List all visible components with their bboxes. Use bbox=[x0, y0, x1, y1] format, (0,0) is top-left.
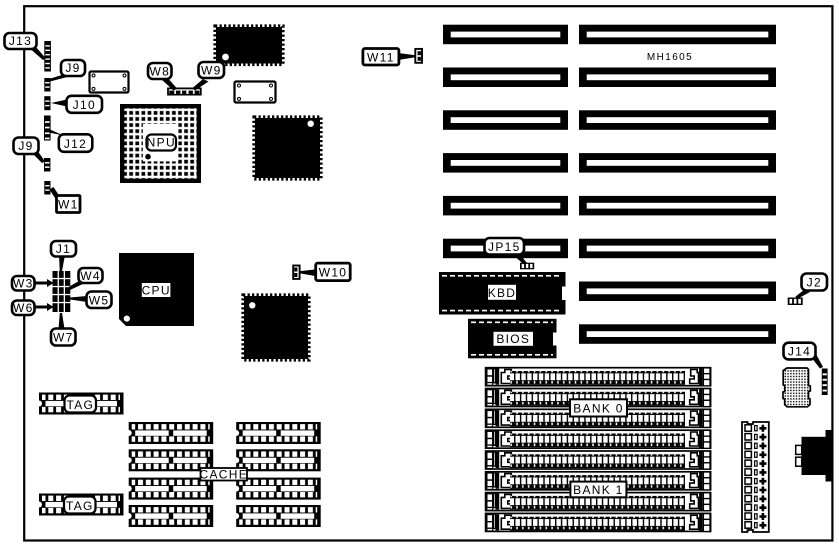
svg-text:W7: W7 bbox=[53, 331, 74, 345]
svg-text:W11: W11 bbox=[367, 50, 395, 64]
svg-text:J2: J2 bbox=[807, 276, 822, 290]
svg-text:J9: J9 bbox=[18, 139, 33, 153]
svg-text:BANK 1: BANK 1 bbox=[573, 483, 624, 497]
svg-text:CACHE: CACHE bbox=[200, 468, 249, 482]
svg-text:J9: J9 bbox=[65, 61, 80, 75]
svg-text:W1: W1 bbox=[58, 198, 79, 212]
svg-text:J12: J12 bbox=[64, 137, 87, 151]
svg-text:J14: J14 bbox=[788, 345, 811, 359]
svg-text:W8: W8 bbox=[149, 64, 170, 78]
svg-text:BANK 0: BANK 0 bbox=[573, 402, 624, 416]
svg-text:W6: W6 bbox=[13, 301, 34, 315]
svg-text:W9: W9 bbox=[201, 63, 222, 77]
svg-text:J1: J1 bbox=[56, 242, 71, 256]
svg-text:NPU: NPU bbox=[147, 136, 176, 150]
svg-text:JP15: JP15 bbox=[488, 240, 521, 254]
svg-text:MH1605: MH1605 bbox=[647, 52, 693, 63]
svg-text:J10: J10 bbox=[73, 98, 96, 112]
svg-text:J13: J13 bbox=[9, 34, 32, 48]
svg-text:TAG: TAG bbox=[66, 499, 94, 513]
svg-text:W4: W4 bbox=[80, 269, 101, 283]
svg-text:W10: W10 bbox=[319, 266, 348, 280]
svg-text:KBD: KBD bbox=[488, 286, 517, 300]
svg-text:CPU: CPU bbox=[142, 283, 171, 297]
svg-text:BIOS: BIOS bbox=[496, 332, 530, 346]
svg-text:W3: W3 bbox=[13, 276, 34, 290]
svg-text:TAG: TAG bbox=[66, 398, 94, 412]
svg-text:W5: W5 bbox=[89, 293, 110, 307]
